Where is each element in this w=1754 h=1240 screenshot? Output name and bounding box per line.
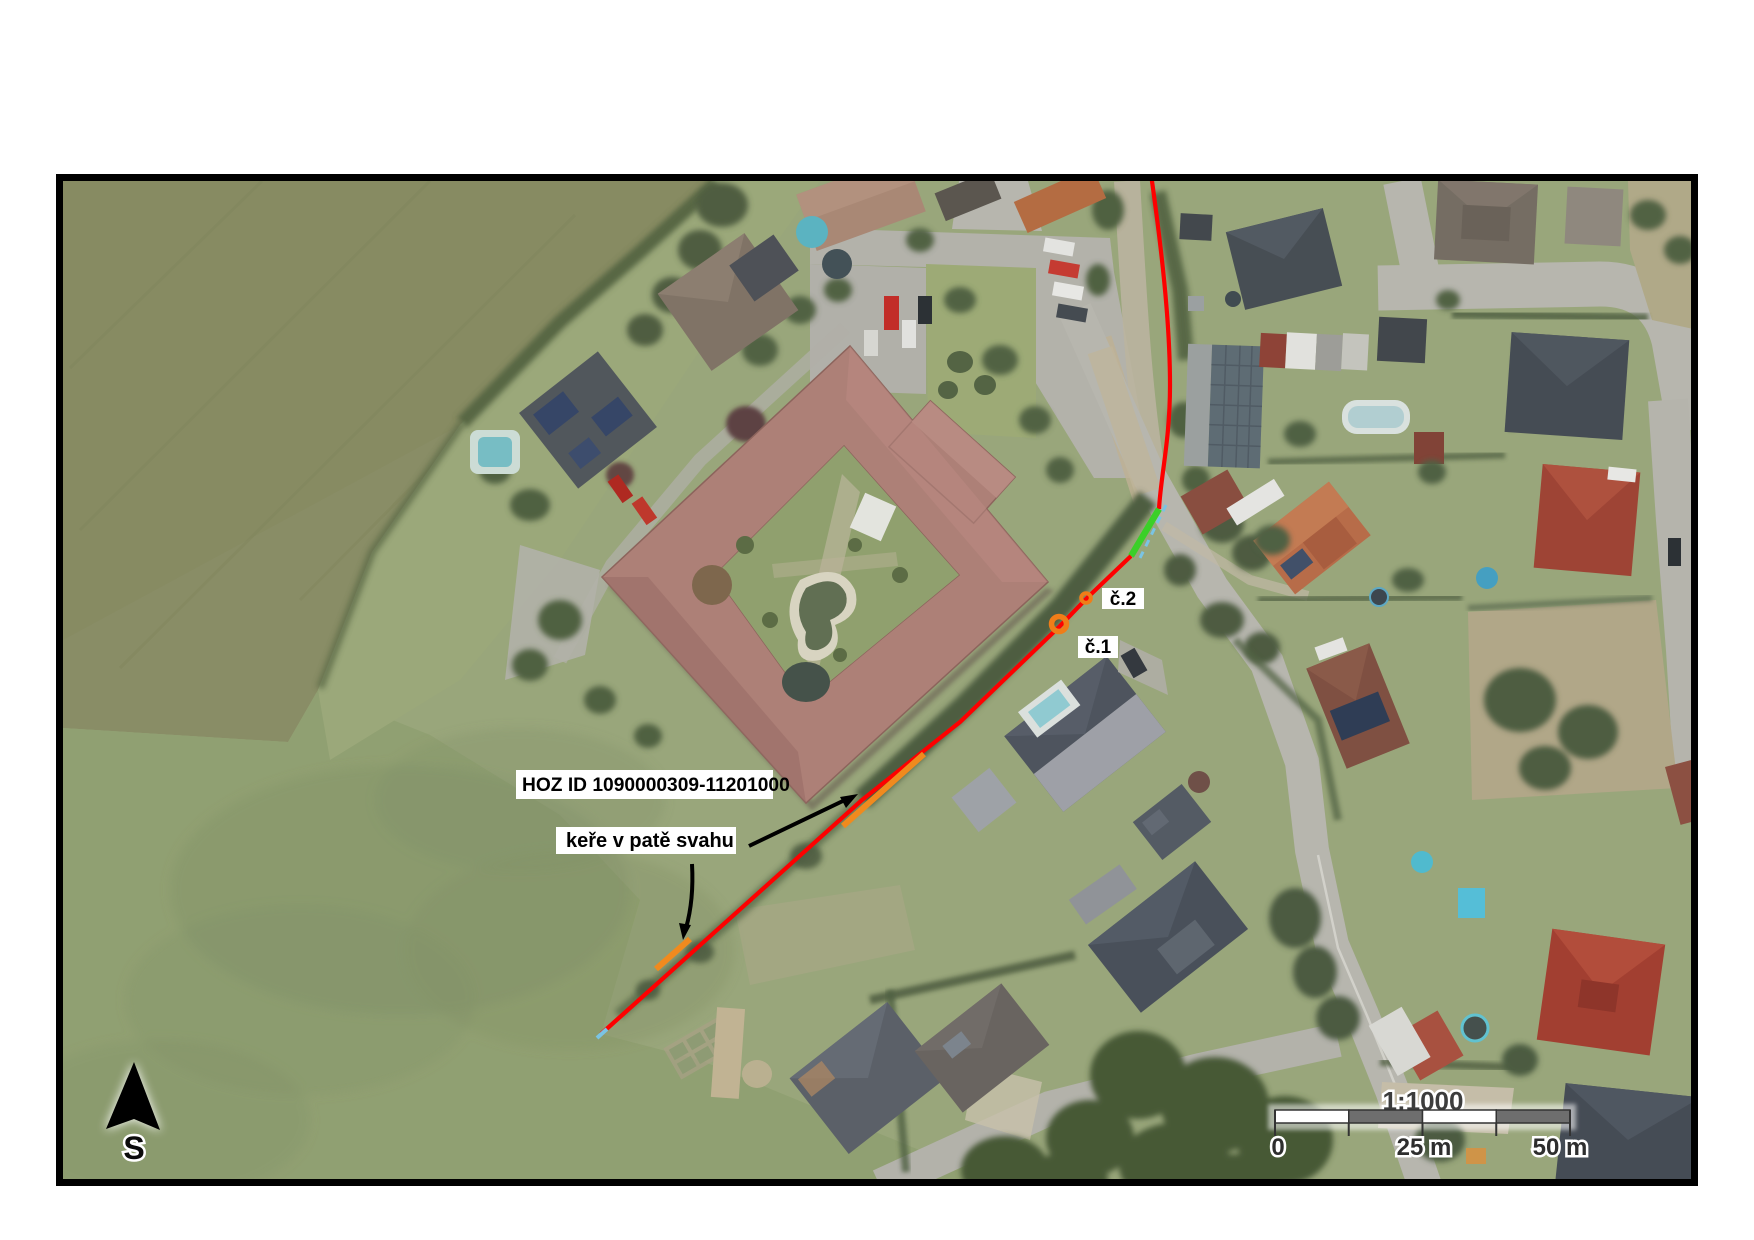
svg-text:keře v patě svahu: keře v patě svahu xyxy=(566,830,734,852)
svg-text:50 m: 50 m xyxy=(1533,1134,1588,1161)
svg-text:č.2: č.2 xyxy=(1110,589,1136,610)
svg-text:0: 0 xyxy=(1271,1134,1284,1161)
svg-text:S: S xyxy=(123,1130,144,1166)
svg-text:25 m: 25 m xyxy=(1397,1134,1452,1161)
svg-text:HOZ ID 1090000309-11201000: HOZ ID 1090000309-11201000 xyxy=(522,775,790,796)
svg-text:č.1: č.1 xyxy=(1085,637,1112,658)
